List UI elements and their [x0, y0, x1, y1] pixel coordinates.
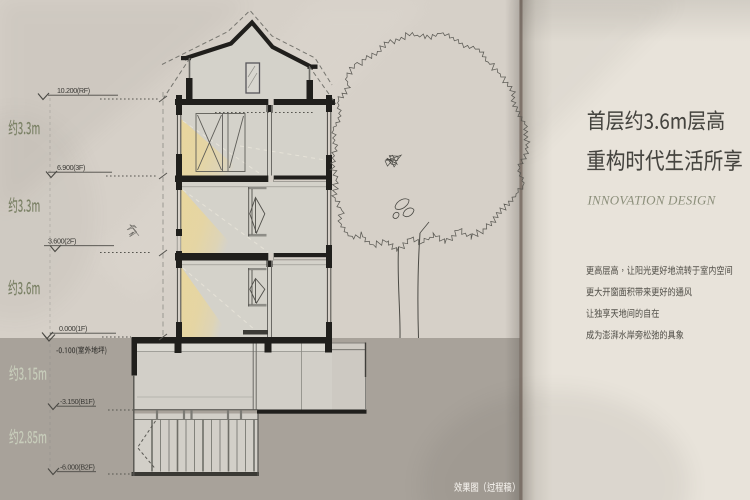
svg-text:10.200(RF): 10.200(RF): [57, 86, 90, 95]
svg-text:INNOVATION DESIGN: INNOVATION DESIGN: [587, 193, 717, 208]
svg-text:6.900(3F): 6.900(3F): [57, 163, 85, 172]
svg-text:3.600(2F): 3.600(2F): [48, 237, 76, 246]
svg-text:-3.150(B1F): -3.150(B1F): [60, 397, 95, 406]
svg-text:0.000(1F): 0.000(1F): [59, 324, 87, 333]
svg-text:-6.000(B2F): -6.000(B2F): [60, 463, 95, 472]
